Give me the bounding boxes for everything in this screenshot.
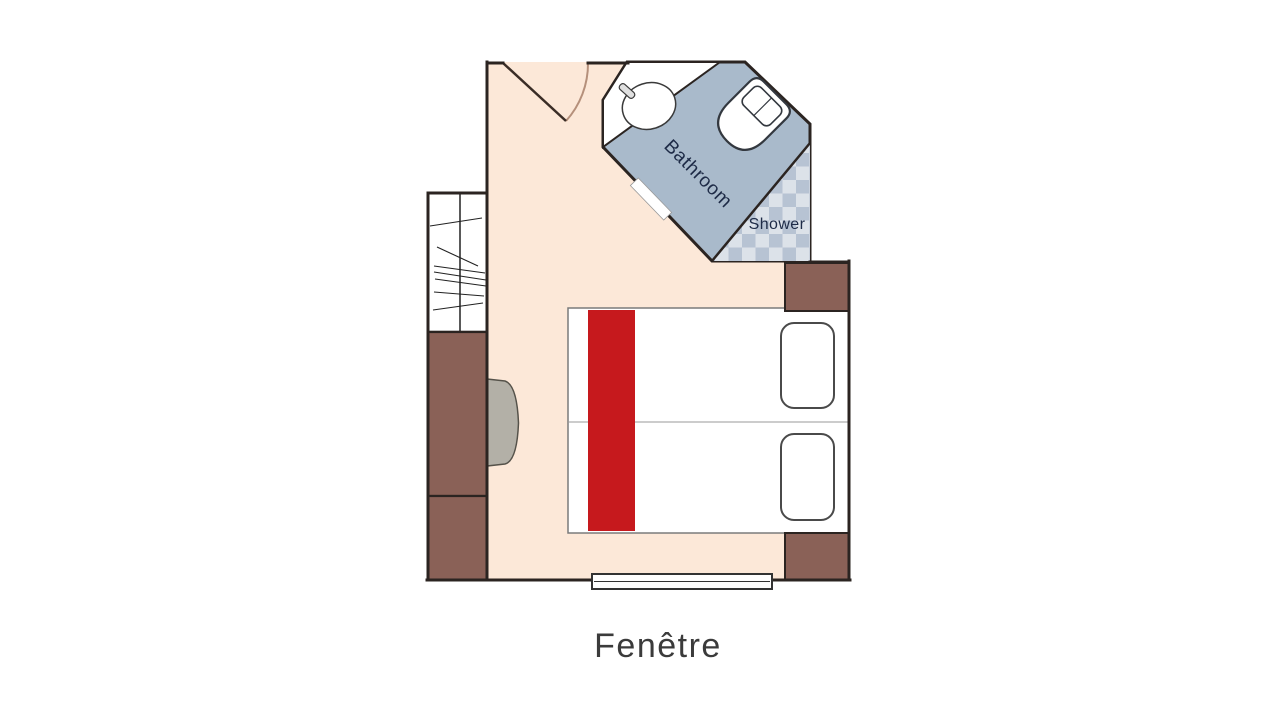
floor-plan: Bathroom Shower Fenêtre (0, 0, 1280, 720)
wardrobe (428, 193, 487, 332)
window (592, 574, 772, 589)
shower-label: Shower (749, 216, 806, 233)
pillow-bottom (781, 434, 834, 520)
bed-runner (588, 310, 635, 531)
cabinet-upper (428, 332, 487, 496)
floor-plan-canvas: Bathroom Shower Fenêtre (0, 0, 1280, 720)
nightstand-top (785, 263, 849, 311)
armchair (487, 379, 519, 466)
window-caption: Fenêtre (594, 627, 722, 665)
twin-beds (568, 308, 849, 533)
wardrobe-box (428, 193, 487, 332)
cabinet-lower (428, 496, 487, 580)
pillow-top (781, 323, 834, 408)
nightstand-bottom (785, 533, 849, 580)
